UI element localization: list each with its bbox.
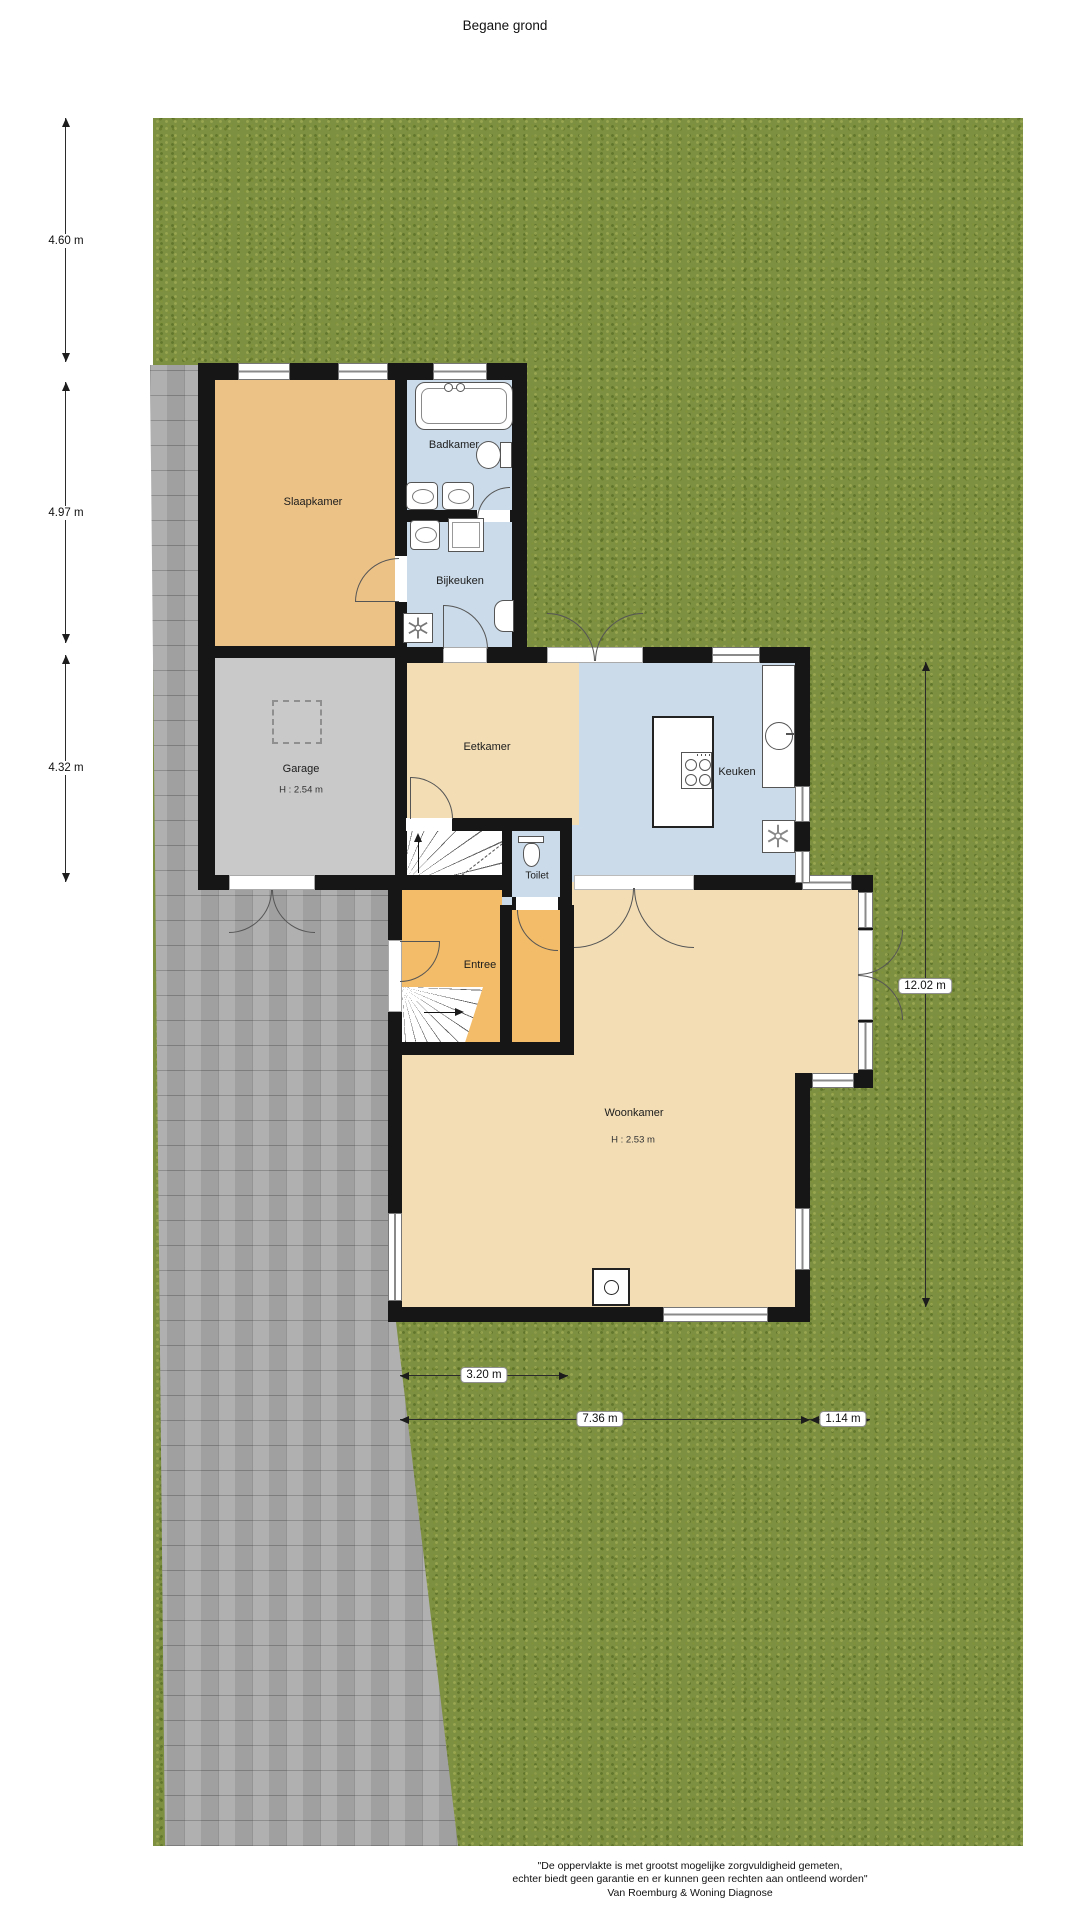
window-badkamer (433, 363, 487, 380)
dimension-label-bottom-main: 7.36 m (576, 1411, 623, 1427)
window-extension-bottom (812, 1073, 854, 1088)
bathtub-inner (421, 388, 507, 424)
arrow-icon (922, 662, 930, 671)
arrow-icon (62, 634, 70, 643)
wall-entree-bottom (402, 1042, 574, 1055)
label-badkamer: Badkamer (429, 439, 479, 451)
window-slaapkamer-1 (238, 363, 290, 380)
appliance-unit (762, 820, 795, 853)
label-woonkamer: Woonkamer (604, 1107, 663, 1119)
door-leaf-slaapkamer (355, 601, 399, 602)
stairs-right-arrow-stem (424, 1012, 456, 1013)
room-woonkamer-left (395, 1048, 575, 1315)
label-bijkeuken: Bijkeuken (436, 575, 484, 587)
wall-right-lower (795, 1073, 810, 1322)
label-eetkamer: Eetkamer (463, 741, 510, 753)
label-slaapkamer: Slaapkamer (284, 496, 343, 508)
window-keuken-right-2 (795, 851, 810, 883)
utility-sink-bowl (415, 527, 437, 543)
window-extension-right-2 (858, 1022, 873, 1070)
burner-icon (699, 759, 711, 771)
fan-icon (763, 821, 793, 851)
stairs-up-arrow-stem (418, 841, 419, 873)
burner-icon (699, 774, 711, 786)
boiler-icon (494, 600, 514, 632)
disclaimer: "De oppervlakte is met grootst mogelijke… (390, 1860, 990, 1900)
door-opening-toilet (516, 897, 558, 910)
arrow-icon (62, 382, 70, 391)
garage-door-opening (229, 875, 315, 890)
arrow-icon (801, 1416, 810, 1424)
arrow-icon (62, 655, 70, 664)
dimension-label-bottom-inner: 3.20 m (460, 1367, 507, 1383)
garage-hatch-dashed (272, 700, 322, 744)
window-woonkamer-right (795, 1208, 810, 1270)
door-leaf-bijkeuken (443, 605, 444, 649)
door-leaf-eetkamer (410, 777, 411, 819)
window-slaapkamer-2 (338, 363, 388, 380)
disclaimer-line-2: echter biedt geen garantie en er kunnen … (390, 1873, 990, 1886)
dimension-label-bottom-right: 1.14 m (819, 1411, 866, 1427)
window-woonkamer-left (388, 1213, 402, 1301)
bath-tap-icon (444, 383, 453, 392)
arrow-icon (62, 118, 70, 127)
washbasin-bowl (412, 489, 434, 504)
arrow-icon (810, 1416, 819, 1424)
bath-tap-icon (456, 383, 465, 392)
stairs-right-arrow (455, 1008, 464, 1016)
washbasin-bowl (448, 489, 470, 504)
window-extension-right-1 (858, 892, 873, 928)
dimension-label-left-top: 4.60 m (45, 234, 86, 248)
window-keuken-right-1 (795, 786, 810, 822)
wall-left (198, 363, 215, 890)
wall-stairs-bottom (395, 875, 512, 890)
arrow-icon (922, 1298, 930, 1307)
fireplace-flue (604, 1280, 619, 1295)
door-leaf-front-door (400, 941, 440, 942)
arrow-icon (62, 353, 70, 362)
floorplan-page: Begane grond (0, 0, 1080, 1920)
kitchen-sink-icon (765, 722, 793, 750)
wall-entree-right (560, 905, 574, 1055)
disclaimer-company: Van Roemburg & Woning Diagnose (390, 1887, 990, 1900)
room-slaapkamer (207, 372, 403, 654)
burner-icon (685, 774, 697, 786)
window-keuken-top (712, 647, 760, 663)
wall-badkamer-right (512, 363, 527, 663)
washing-machine-door (452, 522, 480, 548)
burner-icon (685, 759, 697, 771)
page-title: Begane grond (463, 18, 548, 33)
wall-slaapkamer-garage (198, 646, 407, 658)
window-woonkamer-bottom (663, 1307, 768, 1322)
label-keuken: Keuken (718, 766, 755, 778)
dimension-label-right: 12.02 m (898, 978, 952, 994)
door-opening-eetkamer (406, 818, 452, 831)
label-garage-height: H : 2.54 m (279, 785, 323, 796)
toilet-tank (518, 836, 544, 843)
label-garage: Garage (283, 763, 320, 775)
wall-entree-inner (500, 905, 512, 1042)
toilet-bowl (523, 843, 540, 867)
toilet-bowl-badkamer (476, 441, 501, 469)
arrow-icon (559, 1372, 568, 1380)
wall-woonkamer-top (694, 875, 795, 890)
arrow-icon (400, 1372, 409, 1380)
fan-icon (404, 614, 432, 642)
arrow-icon (62, 873, 70, 882)
door-opening-bijkeuken (443, 647, 487, 663)
kitchen-tap-icon (786, 733, 795, 735)
room-woonkamer-extension (800, 882, 862, 1081)
wall-toilet-right (560, 820, 572, 905)
dimension-label-left-bottom: 4.32 m (45, 761, 86, 775)
label-woonkamer-height: H : 2.53 m (611, 1135, 655, 1146)
dimension-label-left-middle: 4.97 m (45, 506, 86, 520)
arrow-icon (400, 1416, 409, 1424)
toilet-tank-badkamer (500, 442, 512, 468)
label-toilet: Toilet (525, 871, 548, 882)
cooktop-controls (697, 754, 710, 756)
vent-unit (403, 613, 433, 643)
label-entree: Entree (464, 959, 496, 971)
disclaimer-line-1: "De oppervlakte is met grootst mogelijke… (390, 1860, 990, 1873)
